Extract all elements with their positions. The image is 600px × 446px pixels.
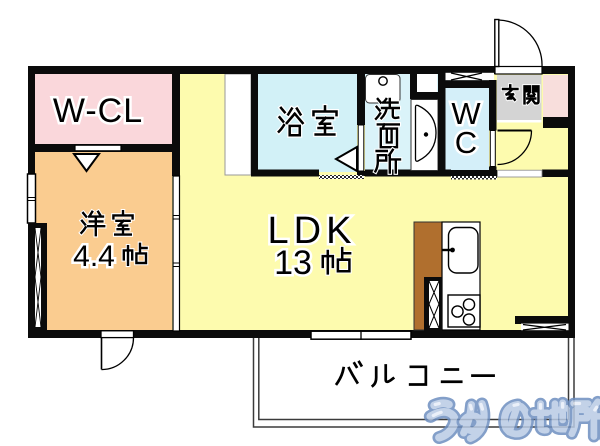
svg-text:4.4: 4.4 <box>73 240 115 273</box>
svg-text:13: 13 <box>274 244 312 282</box>
svg-text:W-CL: W-CL <box>53 92 143 130</box>
svg-text:C: C <box>455 125 477 160</box>
